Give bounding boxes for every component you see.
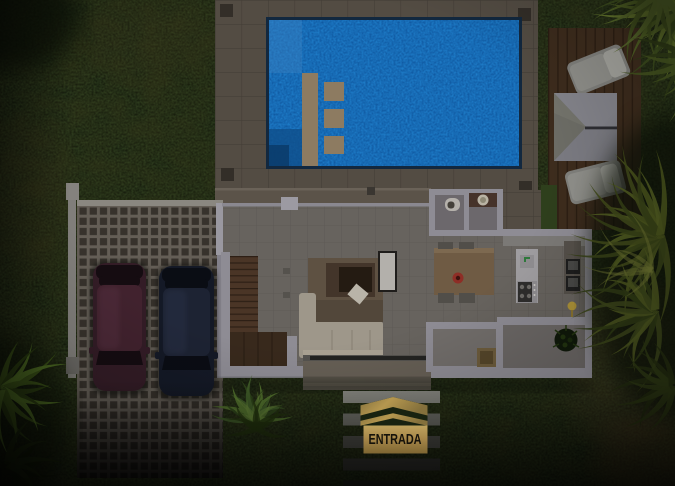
svg-text:ENTRADA: ENTRADA [369, 432, 422, 448]
